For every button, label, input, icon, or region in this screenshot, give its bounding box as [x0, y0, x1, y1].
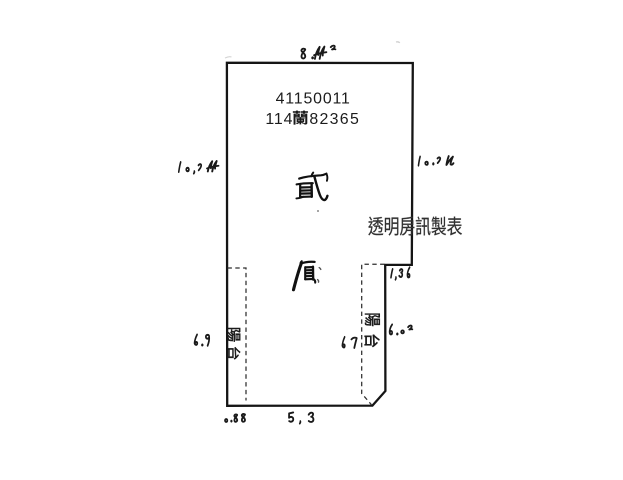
svg-text:41150011: 41150011: [276, 91, 351, 108]
svg-text:82365: 82365: [309, 111, 360, 128]
svg-text:114: 114: [265, 111, 293, 128]
